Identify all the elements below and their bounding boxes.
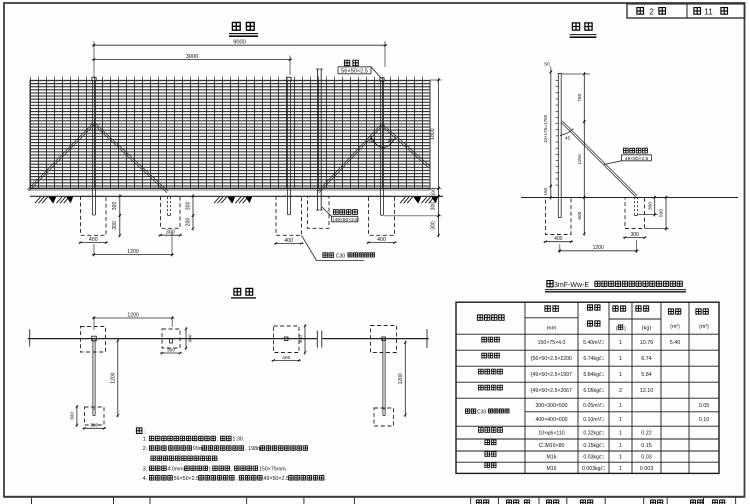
svg-text:1: 1 bbox=[619, 431, 622, 437]
svg-text:5.40: 5.40 bbox=[670, 340, 681, 346]
svg-text:[49×50×2.5×1997: [49×50×2.5×1997 bbox=[531, 372, 572, 378]
svg-text:300: 300 bbox=[430, 202, 436, 211]
svg-text:3.: 3. bbox=[143, 466, 147, 472]
svg-text:150×75×4.0: 150×75×4.0 bbox=[538, 340, 566, 346]
svg-text:200: 200 bbox=[185, 218, 191, 227]
svg-text:56×50×2.5: 56×50×2.5 bbox=[174, 476, 200, 482]
svg-text:[56×50×2.5×2200: [56×50×2.5×2200 bbox=[531, 356, 572, 362]
svg-text:10.76: 10.76 bbox=[640, 340, 654, 346]
svg-text:300: 300 bbox=[188, 334, 194, 342]
svg-text:300: 300 bbox=[166, 230, 175, 236]
svg-text:): ) bbox=[624, 326, 626, 332]
svg-text:4.0mm(: 4.0mm( bbox=[167, 466, 185, 472]
svg-text:5.84: 5.84 bbox=[641, 372, 652, 378]
svg-text:.: . bbox=[325, 476, 327, 482]
svg-text:0.10m³/□: 0.10m³/□ bbox=[583, 417, 605, 423]
svg-text:150×75mm.: 150×75mm. bbox=[259, 466, 287, 472]
svg-text:3mF-Ww-E: 3mF-Ww-E bbox=[554, 282, 589, 289]
svg-text:1200: 1200 bbox=[127, 312, 139, 318]
svg-text:M16: M16 bbox=[546, 466, 556, 472]
svg-text:400: 400 bbox=[554, 236, 563, 242]
svg-text:1: 1 bbox=[619, 356, 622, 362]
svg-text:): ) bbox=[209, 466, 211, 472]
svg-text:C□M16×80: C□M16×80 bbox=[539, 443, 565, 449]
svg-text:400: 400 bbox=[89, 237, 98, 243]
svg-text:1150: 1150 bbox=[577, 154, 583, 165]
svg-text:45: 45 bbox=[388, 139, 394, 145]
svg-text:56×50×2.5: 56×50×2.5 bbox=[341, 69, 368, 75]
svg-text:1200: 1200 bbox=[127, 249, 139, 255]
svg-text:1: 1 bbox=[619, 417, 622, 423]
svg-text:,: , bbox=[231, 466, 233, 472]
svg-text:1800: 1800 bbox=[430, 128, 436, 140]
svg-text:,: , bbox=[235, 476, 237, 482]
svg-text:,: , bbox=[217, 437, 219, 443]
svg-text:300: 300 bbox=[647, 202, 653, 210]
svg-text:10×175=1750: 10×175=1750 bbox=[543, 114, 548, 143]
svg-text:2: 2 bbox=[649, 8, 654, 17]
svg-text:C30: C30 bbox=[336, 254, 346, 260]
svg-text:45: 45 bbox=[565, 136, 571, 142]
svg-text:300: 300 bbox=[430, 221, 436, 230]
svg-text:400: 400 bbox=[284, 238, 293, 244]
svg-text:600: 600 bbox=[577, 211, 583, 219]
svg-text:0.22kg/□: 0.22kg/□ bbox=[583, 431, 604, 437]
svg-text:2: 2 bbox=[619, 388, 622, 394]
svg-text:(m²): (m²) bbox=[670, 324, 680, 330]
svg-text:1: 1 bbox=[619, 466, 622, 472]
svg-text:0.003: 0.003 bbox=[640, 466, 654, 472]
svg-text:400: 400 bbox=[298, 335, 304, 343]
svg-text:C30: C30 bbox=[477, 410, 487, 416]
svg-text:300: 300 bbox=[185, 201, 191, 210]
svg-text:49×50×2.5: 49×50×2.5 bbox=[625, 156, 649, 162]
svg-text:0.15kg/□: 0.15kg/□ bbox=[583, 443, 604, 449]
svg-text:6.05kg/□: 6.05kg/□ bbox=[583, 388, 604, 394]
svg-text:4.: 4. bbox=[143, 476, 147, 482]
svg-text:300×300×500: 300×300×500 bbox=[535, 403, 567, 409]
svg-text:300: 300 bbox=[112, 221, 118, 230]
svg-text:1.: 1. bbox=[143, 437, 147, 443]
svg-text:1: 1 bbox=[619, 403, 622, 409]
svg-text:0.003kg/□: 0.003kg/□ bbox=[582, 466, 606, 472]
svg-text:12.10: 12.10 bbox=[640, 388, 654, 394]
svg-text:400: 400 bbox=[282, 355, 290, 361]
svg-text:10×φ6×110: 10×φ6×110 bbox=[538, 431, 564, 437]
svg-text:1: 1 bbox=[619, 443, 622, 449]
svg-text:300: 300 bbox=[112, 201, 118, 210]
svg-text:[49×50×2.5×2067: [49×50×2.5×2067 bbox=[531, 388, 572, 394]
svg-text:50: 50 bbox=[544, 61, 550, 67]
svg-text:3000: 3000 bbox=[186, 54, 198, 60]
svg-text:[49×50×2.5: [49×50×2.5 bbox=[333, 217, 358, 223]
svg-text:0.05m³/□: 0.05m³/□ bbox=[583, 403, 605, 409]
svg-text:1:30.: 1:30. bbox=[232, 437, 244, 443]
svg-text:150: 150 bbox=[543, 187, 548, 195]
svg-text:(: ( bbox=[616, 326, 618, 332]
svg-text:300: 300 bbox=[90, 423, 98, 429]
svg-text:11: 11 bbox=[704, 8, 713, 17]
svg-text:5.84kg/□: 5.84kg/□ bbox=[583, 372, 604, 378]
svg-text:M16: M16 bbox=[546, 455, 556, 461]
svg-text:0.03: 0.03 bbox=[641, 455, 652, 461]
svg-text:9000: 9000 bbox=[233, 40, 245, 46]
svg-text:1: 1 bbox=[619, 455, 622, 461]
svg-text:0.15: 0.15 bbox=[641, 443, 652, 449]
svg-text:400: 400 bbox=[377, 237, 386, 243]
svg-text:49×50×2.5: 49×50×2.5 bbox=[263, 476, 289, 482]
svg-text:0.03kg/□: 0.03kg/□ bbox=[583, 455, 604, 461]
svg-text:0.22: 0.22 bbox=[641, 431, 652, 437]
svg-text:45: 45 bbox=[369, 139, 375, 145]
svg-text:(m³): (m³) bbox=[699, 324, 709, 330]
svg-text:300: 300 bbox=[631, 232, 640, 238]
svg-text:1: 1 bbox=[619, 372, 622, 378]
svg-text:1200: 1200 bbox=[111, 372, 117, 383]
svg-text:1: 1 bbox=[619, 340, 622, 346]
svg-text:300: 300 bbox=[167, 347, 175, 353]
svg-text:1200: 1200 bbox=[398, 373, 404, 384]
svg-text:0.10: 0.10 bbox=[699, 417, 710, 423]
svg-text:100: 100 bbox=[430, 188, 435, 196]
svg-text:400×400×600: 400×400×600 bbox=[535, 417, 567, 423]
svg-text:1200: 1200 bbox=[593, 245, 604, 251]
svg-text:2.: 2. bbox=[143, 446, 147, 452]
svg-text:(kg): (kg) bbox=[642, 326, 651, 332]
svg-text:0.05: 0.05 bbox=[699, 403, 710, 409]
svg-text:750: 750 bbox=[577, 93, 583, 101]
svg-text:5.40m²/□: 5.40m²/□ bbox=[583, 340, 605, 346]
svg-text:300: 300 bbox=[70, 412, 76, 420]
svg-text:mm: mm bbox=[547, 326, 557, 332]
svg-text:6.74: 6.74 bbox=[641, 356, 652, 362]
svg-text:6.74kg/□: 6.74kg/□ bbox=[583, 356, 604, 362]
svg-text:500: 500 bbox=[659, 209, 665, 217]
svg-text:,: , bbox=[245, 446, 247, 452]
